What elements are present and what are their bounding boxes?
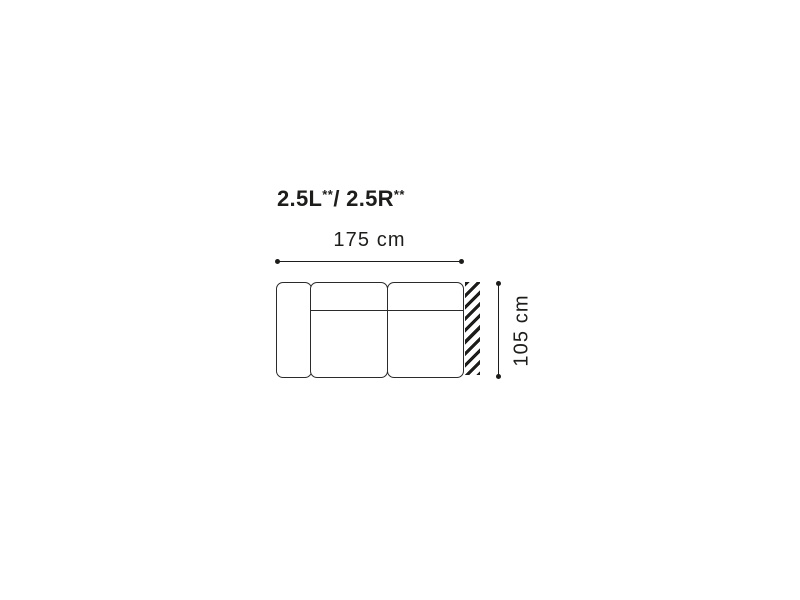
- module-code-left: 2.5L: [277, 186, 322, 211]
- dimension-endpoint-dot: [496, 281, 501, 286]
- seat-module-2: [387, 282, 464, 378]
- dimension-endpoint-dot: [275, 259, 280, 264]
- seat-module-1: [310, 282, 388, 378]
- dimension-endpoint-dot: [496, 374, 501, 379]
- depth-dimension-line: [498, 283, 499, 377]
- spec-diagram: 2.5L**/ 2.5R** 175 cm 105 cm: [0, 0, 800, 600]
- depth-dimension-label-text: 105 cm: [511, 294, 534, 366]
- dimension-endpoint-dot: [459, 259, 464, 264]
- footnote-marker-right: **: [394, 187, 405, 202]
- depth-dimension-label: 105 cm: [504, 283, 540, 377]
- module-title: 2.5L**/ 2.5R**: [277, 186, 405, 212]
- footnote-marker-left: **: [322, 187, 333, 202]
- connection-edge-hatching: [465, 282, 480, 375]
- module-code-right: / 2.5R: [333, 186, 394, 211]
- backrest-line-seat-2: [388, 283, 463, 311]
- width-dimension-line: [277, 261, 462, 262]
- armrest-left-module: [276, 282, 312, 378]
- backrest-line-seat-1: [311, 283, 387, 311]
- width-dimension-label: 175 cm: [277, 229, 462, 252]
- sofa-top-view: [276, 282, 464, 378]
